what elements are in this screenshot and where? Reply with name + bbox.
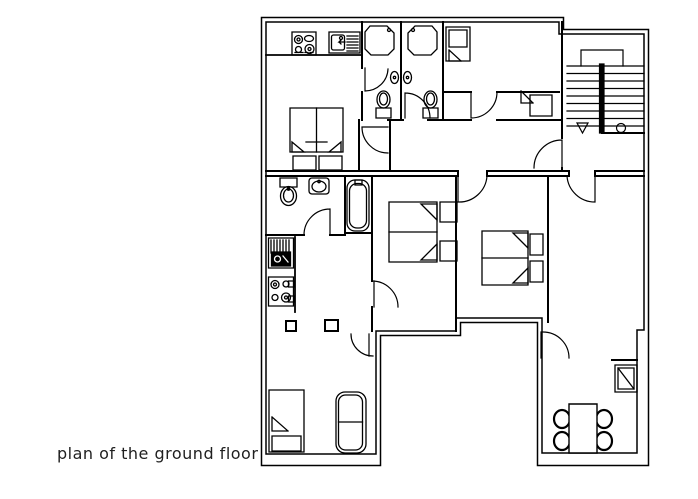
- chair: [554, 410, 570, 428]
- wall-basin: [391, 72, 399, 84]
- double-bed: [389, 202, 457, 262]
- door-swing: [304, 209, 330, 235]
- door-swing: [567, 176, 595, 202]
- stair-treads: [567, 66, 644, 126]
- toilet: [280, 178, 297, 206]
- door-swing: [365, 68, 388, 91]
- dining-set: [554, 404, 612, 453]
- door-swing: [372, 281, 398, 307]
- bathtub: [347, 180, 369, 231]
- chair: [554, 432, 570, 450]
- nightstand: [530, 234, 543, 255]
- shower-tray: [408, 26, 437, 55]
- toilet: [423, 91, 438, 118]
- door-swing: [458, 176, 487, 202]
- wall-basin: [404, 72, 412, 84]
- door-swing: [351, 334, 373, 356]
- staircase: [567, 50, 644, 133]
- stair-divider-wall: [600, 64, 605, 133]
- stove-top: [269, 277, 295, 306]
- chair: [596, 410, 612, 428]
- door-swing: [471, 92, 497, 118]
- floor-plan-drawing: [0, 0, 698, 499]
- kitchenette-upper: [266, 32, 362, 55]
- chair: [596, 432, 612, 450]
- shower-tray: [365, 26, 394, 55]
- nightstand: [440, 241, 457, 261]
- door-swing: [541, 332, 569, 358]
- kitchen-sink-drainer: [329, 32, 360, 53]
- shower-room-2: [404, 26, 439, 118]
- double-bed: [482, 231, 543, 285]
- floor-plan-page: plan of the ground floor: [0, 0, 698, 499]
- sideboard: [615, 365, 637, 392]
- stair-down-arrow: [577, 123, 588, 133]
- shower-room-1: [365, 26, 399, 118]
- pillow: [319, 156, 342, 170]
- dining-table: [569, 404, 597, 453]
- double-bed: [290, 108, 343, 170]
- stove-top: [292, 32, 316, 55]
- door-swing: [534, 140, 562, 168]
- door-swing: [362, 127, 388, 153]
- kitchen-lower: [269, 237, 296, 312]
- sofa: [336, 392, 366, 453]
- nightstand: [440, 202, 457, 222]
- column: [325, 320, 338, 331]
- single-bed: [269, 390, 304, 452]
- washbasin: [309, 178, 329, 194]
- toilet: [376, 91, 391, 118]
- kitchen-sink-drainer: [269, 238, 294, 268]
- nightstand: [530, 261, 543, 282]
- pillow: [293, 156, 316, 170]
- closet: [446, 27, 470, 61]
- column: [286, 321, 296, 331]
- bathroom: [280, 178, 369, 231]
- shelf-unit: [521, 91, 552, 116]
- stair-start-marker: [617, 124, 626, 133]
- caption: plan of the ground floor: [57, 444, 258, 463]
